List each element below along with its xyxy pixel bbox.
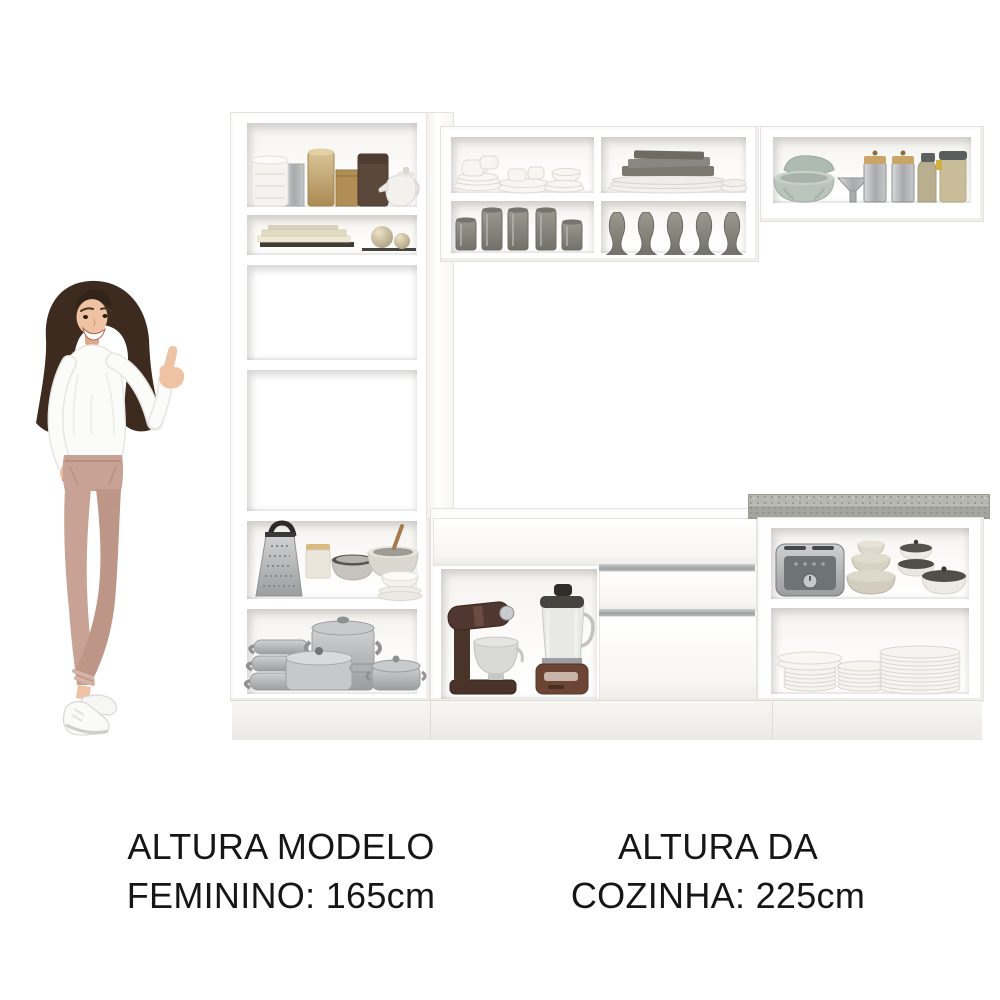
toaster-and-bowls: [776, 540, 966, 596]
decor-sphere: [394, 233, 410, 249]
bowl-with-spoon: [368, 526, 418, 578]
dark-rim-bowl: [332, 555, 374, 581]
caption-model-line1: ALTURA MODELO: [31, 822, 531, 871]
drinking-glasses: [456, 207, 582, 250]
product-image: ALTURA MODELO FEMININO: 165cm ALTURA DA …: [0, 0, 1000, 1000]
small-bowl-stack: [378, 572, 422, 601]
stand-mixer: [447, 600, 522, 694]
caption-model-line2: FEMININO: 165cm: [31, 871, 531, 920]
appliances: [447, 584, 593, 694]
brown-tin: [358, 154, 388, 206]
caption-kitchen-line2: COZINHA: 225cm: [468, 871, 968, 920]
grater-and-bowls: [256, 523, 422, 601]
green-bowls-and-jars: [774, 151, 967, 203]
plate-stacks: [778, 646, 960, 694]
gray-plate-stack: [608, 150, 747, 193]
plate-stack-small: [778, 652, 842, 691]
green-bowls: [774, 156, 834, 202]
caption-model-height: ALTURA MODELO FEMININO: 165cm: [31, 822, 531, 920]
casserole: [367, 656, 425, 691]
toaster: [776, 544, 844, 596]
pointing-hand: [159, 346, 184, 389]
lidded-bowls: [898, 540, 966, 594]
storage-jar: [936, 151, 967, 202]
metal-vases: [607, 213, 742, 255]
storage-jars: [252, 149, 419, 207]
metal-canisters: [864, 151, 914, 203]
books-and-ornaments: [258, 225, 416, 251]
caption-kitchen-line1: ALTURA DA: [468, 822, 968, 871]
decor-sphere: [371, 226, 393, 248]
aluminum-pots: [246, 617, 426, 691]
caption-kitchen-height: ALTURA DA COZINHA: 225cm: [468, 822, 968, 920]
beige-bowl-stack: [847, 541, 895, 595]
plate-stack-large: [880, 646, 960, 694]
box-grater: [256, 523, 302, 596]
teacups-and-saucers: [454, 156, 584, 193]
model-figure: [36, 281, 184, 735]
storage-bottle: [918, 153, 936, 202]
blender: [536, 584, 593, 694]
